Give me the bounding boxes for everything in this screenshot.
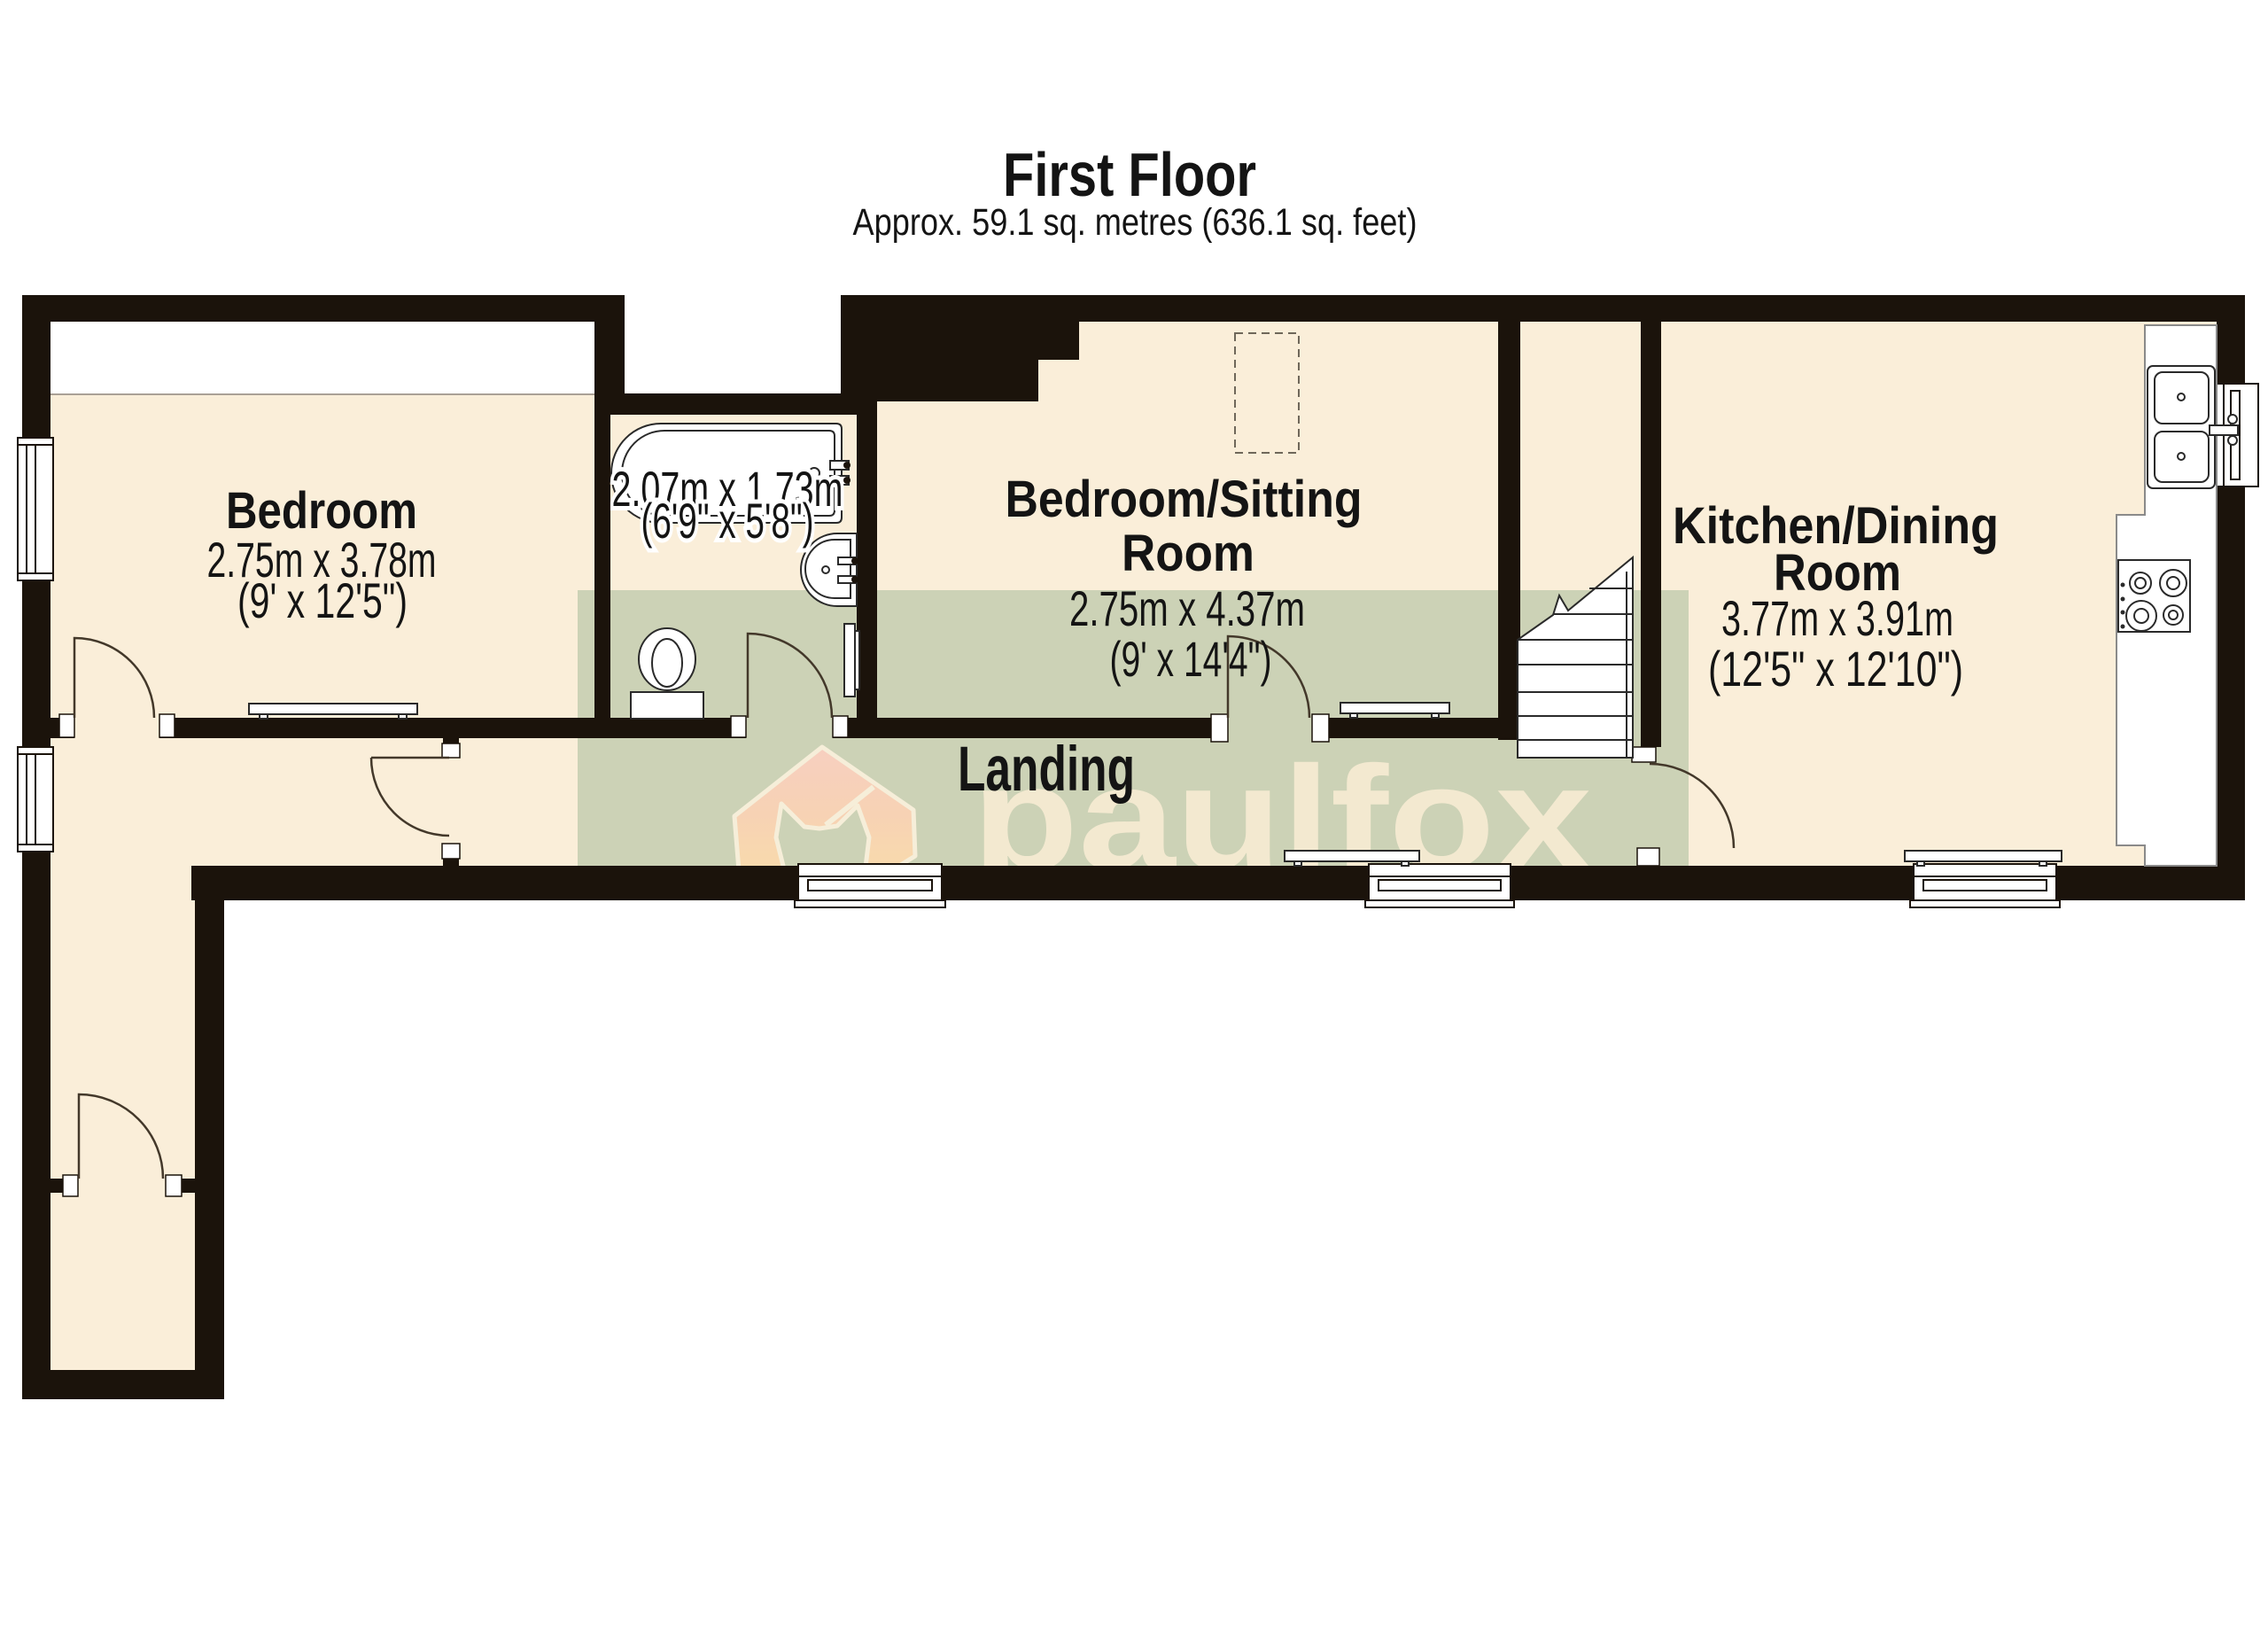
svg-text:Landing: Landing [958, 735, 1135, 805]
svg-text:Approx. 59.1 sq. metres (636.1: Approx. 59.1 sq. metres (636.1 sq. feet) [853, 201, 1417, 244]
svg-text:Room: Room [1122, 525, 1254, 582]
svg-text:First Floor: First Floor [1003, 140, 1256, 209]
svg-text:Bedroom/Sitting: Bedroom/Sitting [1006, 471, 1363, 528]
svg-text:(12'5" x 12'10"): (12'5" x 12'10") [1708, 641, 1963, 697]
svg-text:2.75m x 4.37m: 2.75m x 4.37m [1069, 580, 1305, 636]
svg-text:(9' x 12'5"): (9' x 12'5") [237, 572, 408, 628]
svg-text:(9' x 14'4"): (9' x 14'4") [1110, 631, 1272, 687]
svg-text:3.77m x 3.91m: 3.77m x 3.91m [1721, 590, 1953, 646]
svg-text:(6'9" x 5'8"): (6'9" x 5'8") [641, 493, 814, 549]
